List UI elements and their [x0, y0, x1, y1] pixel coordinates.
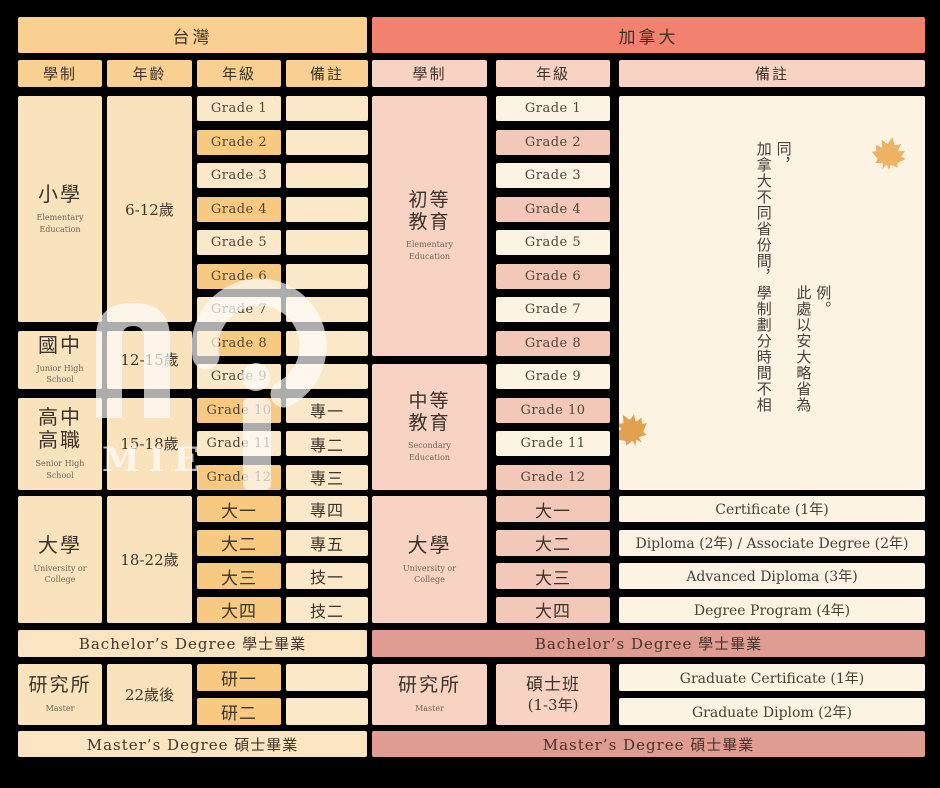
level-name-line1: 高中: [38, 406, 82, 429]
note-cell: Graduate Certificate (1年): [619, 664, 925, 691]
col-header-grade: 年級: [197, 60, 281, 87]
level-name-line2: 教育: [408, 413, 450, 435]
note-cell: Diploma (2年) / Associate Degree (2年): [619, 530, 925, 556]
grade-cell: Grade 3: [496, 163, 610, 188]
taiwan-age-junior: 12-15歲: [107, 331, 192, 390]
level-subtitle: University or College: [30, 563, 90, 585]
grade-cell: Grade 9: [496, 364, 610, 389]
taiwan-university-grid: 大學 University or College 18-22歲 大一 大二 大三…: [18, 496, 367, 623]
canada-column-headers: 學制 年級 備註: [372, 60, 925, 87]
uni-grade-cell: 大四: [496, 597, 610, 623]
level-name: 研究所: [28, 675, 91, 697]
level-name-line1: 中等: [408, 391, 450, 413]
grade-cell: Grade 3: [197, 163, 281, 188]
note-cell: [286, 331, 368, 356]
note-cell: 專一: [286, 398, 368, 423]
canada-notes-vertical-text: 加拿大不同省份間，學制劃分時間不相同， 此處以安大略省為例。: [753, 141, 832, 441]
canada-bachelor-row: Bachelor’s Degree 學士畢業: [372, 630, 925, 657]
level-name: 國中: [38, 334, 82, 357]
uni-grade-cell: 大一: [197, 496, 281, 522]
taiwan-section: 台灣 學制 年齡 年級 備註 小學 Elementary Education 國…: [18, 17, 367, 757]
canada-notes-box: 加拿大不同省份間，學制劃分時間不相同， 此處以安大略省為例。: [619, 96, 925, 490]
canada-master-program-block: 碩士班 (1-3年): [496, 664, 610, 725]
grad-grade-cell: 研二: [197, 698, 281, 725]
canada-grades-grid: 初等 教育 Elementary Education 中等 教育 Seconda…: [372, 96, 925, 490]
note-cell: [286, 698, 368, 725]
taiwan-junior-block: 國中 Junior High School: [18, 331, 102, 390]
col-header-school-system: 學制: [18, 60, 102, 87]
note-cell: [286, 664, 368, 691]
grade-cell: Grade 4: [496, 197, 610, 222]
note-cell: 專四: [286, 496, 368, 522]
taiwan-master-row: Master’s Degree 碩士畢業: [18, 731, 367, 757]
col-header-notes: 備註: [619, 60, 925, 87]
notes-column-2: 此處以安大略省為例。: [793, 285, 833, 441]
level-name-line1: 初等: [408, 190, 450, 212]
note-cell: 專五: [286, 530, 368, 556]
uni-grade-cell: 大二: [496, 530, 610, 556]
level-subtitle: Elementary Education: [30, 212, 90, 234]
taiwan-age-graduate: 22歲後: [107, 664, 192, 725]
level-subtitle: Master: [400, 703, 460, 714]
level-name: 研究所: [398, 675, 461, 697]
uni-grade-cell: 大四: [197, 597, 281, 623]
note-cell: 專三: [286, 465, 368, 490]
grade-cell: Grade 6: [197, 264, 281, 289]
level-subtitle: Secondary Education: [400, 440, 460, 462]
taiwan-graduate-block: 研究所 Master: [18, 664, 102, 725]
taiwan-column-headers: 學制 年齡 年級 備註: [18, 60, 367, 87]
level-name: 大學: [408, 534, 452, 557]
grade-cell: Grade 11: [496, 431, 610, 456]
taiwan-bachelor-row: Bachelor’s Degree 學士畢業: [18, 630, 367, 657]
grad-grade-cell: 研一: [197, 664, 281, 691]
grade-cell: Grade 7: [496, 297, 610, 322]
program-duration: (1-3年): [528, 696, 579, 714]
note-cell: Degree Program (4年): [619, 597, 925, 623]
note-cell: [286, 297, 368, 322]
col-header-grade: 年級: [496, 60, 610, 87]
uni-grade-cell: 大一: [496, 496, 610, 522]
grade-cell: Grade 4: [197, 197, 281, 222]
note-cell: Certificate (1年): [619, 496, 925, 522]
grade-cell: Grade 9: [197, 364, 281, 389]
level-subtitle: University or College: [400, 563, 460, 585]
program-name: 碩士班: [526, 675, 580, 695]
level-name: 小學: [38, 183, 82, 206]
uni-grade-cell: 大三: [496, 563, 610, 589]
taiwan-elementary-block: 小學 Elementary Education: [18, 96, 102, 322]
taiwan-senior-block: 高中 高職 Senior High School: [18, 398, 102, 490]
note-cell: Advanced Diploma (3年): [619, 563, 925, 589]
note-cell: Graduate Diplom (2年): [619, 698, 925, 725]
taiwan-age-elementary: 6-12歲: [107, 96, 192, 322]
canada-secondary-block: 中等 教育 Secondary Education: [372, 364, 487, 490]
level-subtitle: Junior High School: [30, 363, 90, 385]
grade-cell: Grade 10: [197, 398, 281, 423]
note-cell: [286, 264, 368, 289]
note-cell: [286, 364, 368, 389]
grade-cell: Grade 5: [197, 230, 281, 255]
maple-leaf-icon: [619, 406, 655, 455]
taiwan-graduate-grid: 研究所 Master 22歲後 研一 研二: [18, 664, 367, 725]
grade-cell: Grade 7: [197, 297, 281, 322]
canada-elementary-block: 初等 教育 Elementary Education: [372, 96, 487, 356]
taiwan-grades-grid: 小學 Elementary Education 國中 Junior High S…: [18, 96, 367, 490]
note-cell: [286, 96, 368, 121]
maple-leaf-icon: [868, 133, 911, 176]
level-subtitle: Senior High School: [30, 458, 90, 480]
note-cell: [286, 130, 368, 155]
grade-cell: Grade 8: [496, 331, 610, 356]
grade-cell: Grade 2: [496, 130, 610, 155]
taiwan-university-block: 大學 University or College: [18, 496, 102, 623]
grade-cell: Grade 12: [496, 465, 610, 490]
canada-university-block: 大學 University or College: [372, 496, 487, 623]
canada-graduate-block: 研究所 Master: [372, 664, 487, 725]
level-name-line2: 高職: [38, 429, 82, 452]
canada-master-row: Master’s Degree 碩士畢業: [372, 731, 925, 757]
education-comparison-infographic: 台灣 學制 年齡 年級 備註 小學 Elementary Education 國…: [0, 0, 940, 788]
uni-grade-cell: 大二: [197, 530, 281, 556]
grade-cell: Grade 12: [197, 465, 281, 490]
grade-cell: Grade 11: [197, 431, 281, 456]
note-cell: 技二: [286, 597, 368, 623]
grade-cell: Grade 10: [496, 398, 610, 423]
note-cell: [286, 197, 368, 222]
grade-cell: Grade 1: [197, 96, 281, 121]
note-cell: 技一: [286, 563, 368, 589]
canada-graduate-grid: 研究所 Master 碩士班 (1-3年) Graduate Certifica…: [372, 664, 925, 725]
level-name: 大學: [38, 534, 82, 557]
level-subtitle: Elementary Education: [400, 239, 460, 261]
grade-cell: Grade 2: [197, 130, 281, 155]
grade-cell: Grade 1: [496, 96, 610, 121]
grade-cell: Grade 8: [197, 331, 281, 356]
level-name-line2: 教育: [408, 212, 450, 234]
taiwan-age-senior: 15-18歲: [107, 398, 192, 490]
col-header-age: 年齡: [107, 60, 192, 87]
note-cell: 專二: [286, 431, 368, 456]
grade-cell: Grade 5: [496, 230, 610, 255]
taiwan-age-university: 18-22歲: [107, 496, 192, 623]
col-header-school-system: 學制: [372, 60, 487, 87]
uni-grade-cell: 大三: [197, 563, 281, 589]
col-header-notes: 備註: [286, 60, 368, 87]
grade-cell: Grade 6: [496, 264, 610, 289]
notes-column-1: 加拿大不同省份間，學制劃分時間不相同，: [753, 141, 793, 441]
taiwan-title: 台灣: [18, 17, 367, 53]
canada-section: 加拿大 學制 年級 備註 初等 教育 Elementary Education …: [372, 17, 925, 757]
note-cell: [286, 230, 368, 255]
note-cell: [286, 163, 368, 188]
level-subtitle: Master: [30, 703, 90, 714]
canada-title: 加拿大: [372, 17, 925, 53]
canada-university-grid: 大學 University or College 大一 大二 大三 大四 Cer…: [372, 496, 925, 623]
